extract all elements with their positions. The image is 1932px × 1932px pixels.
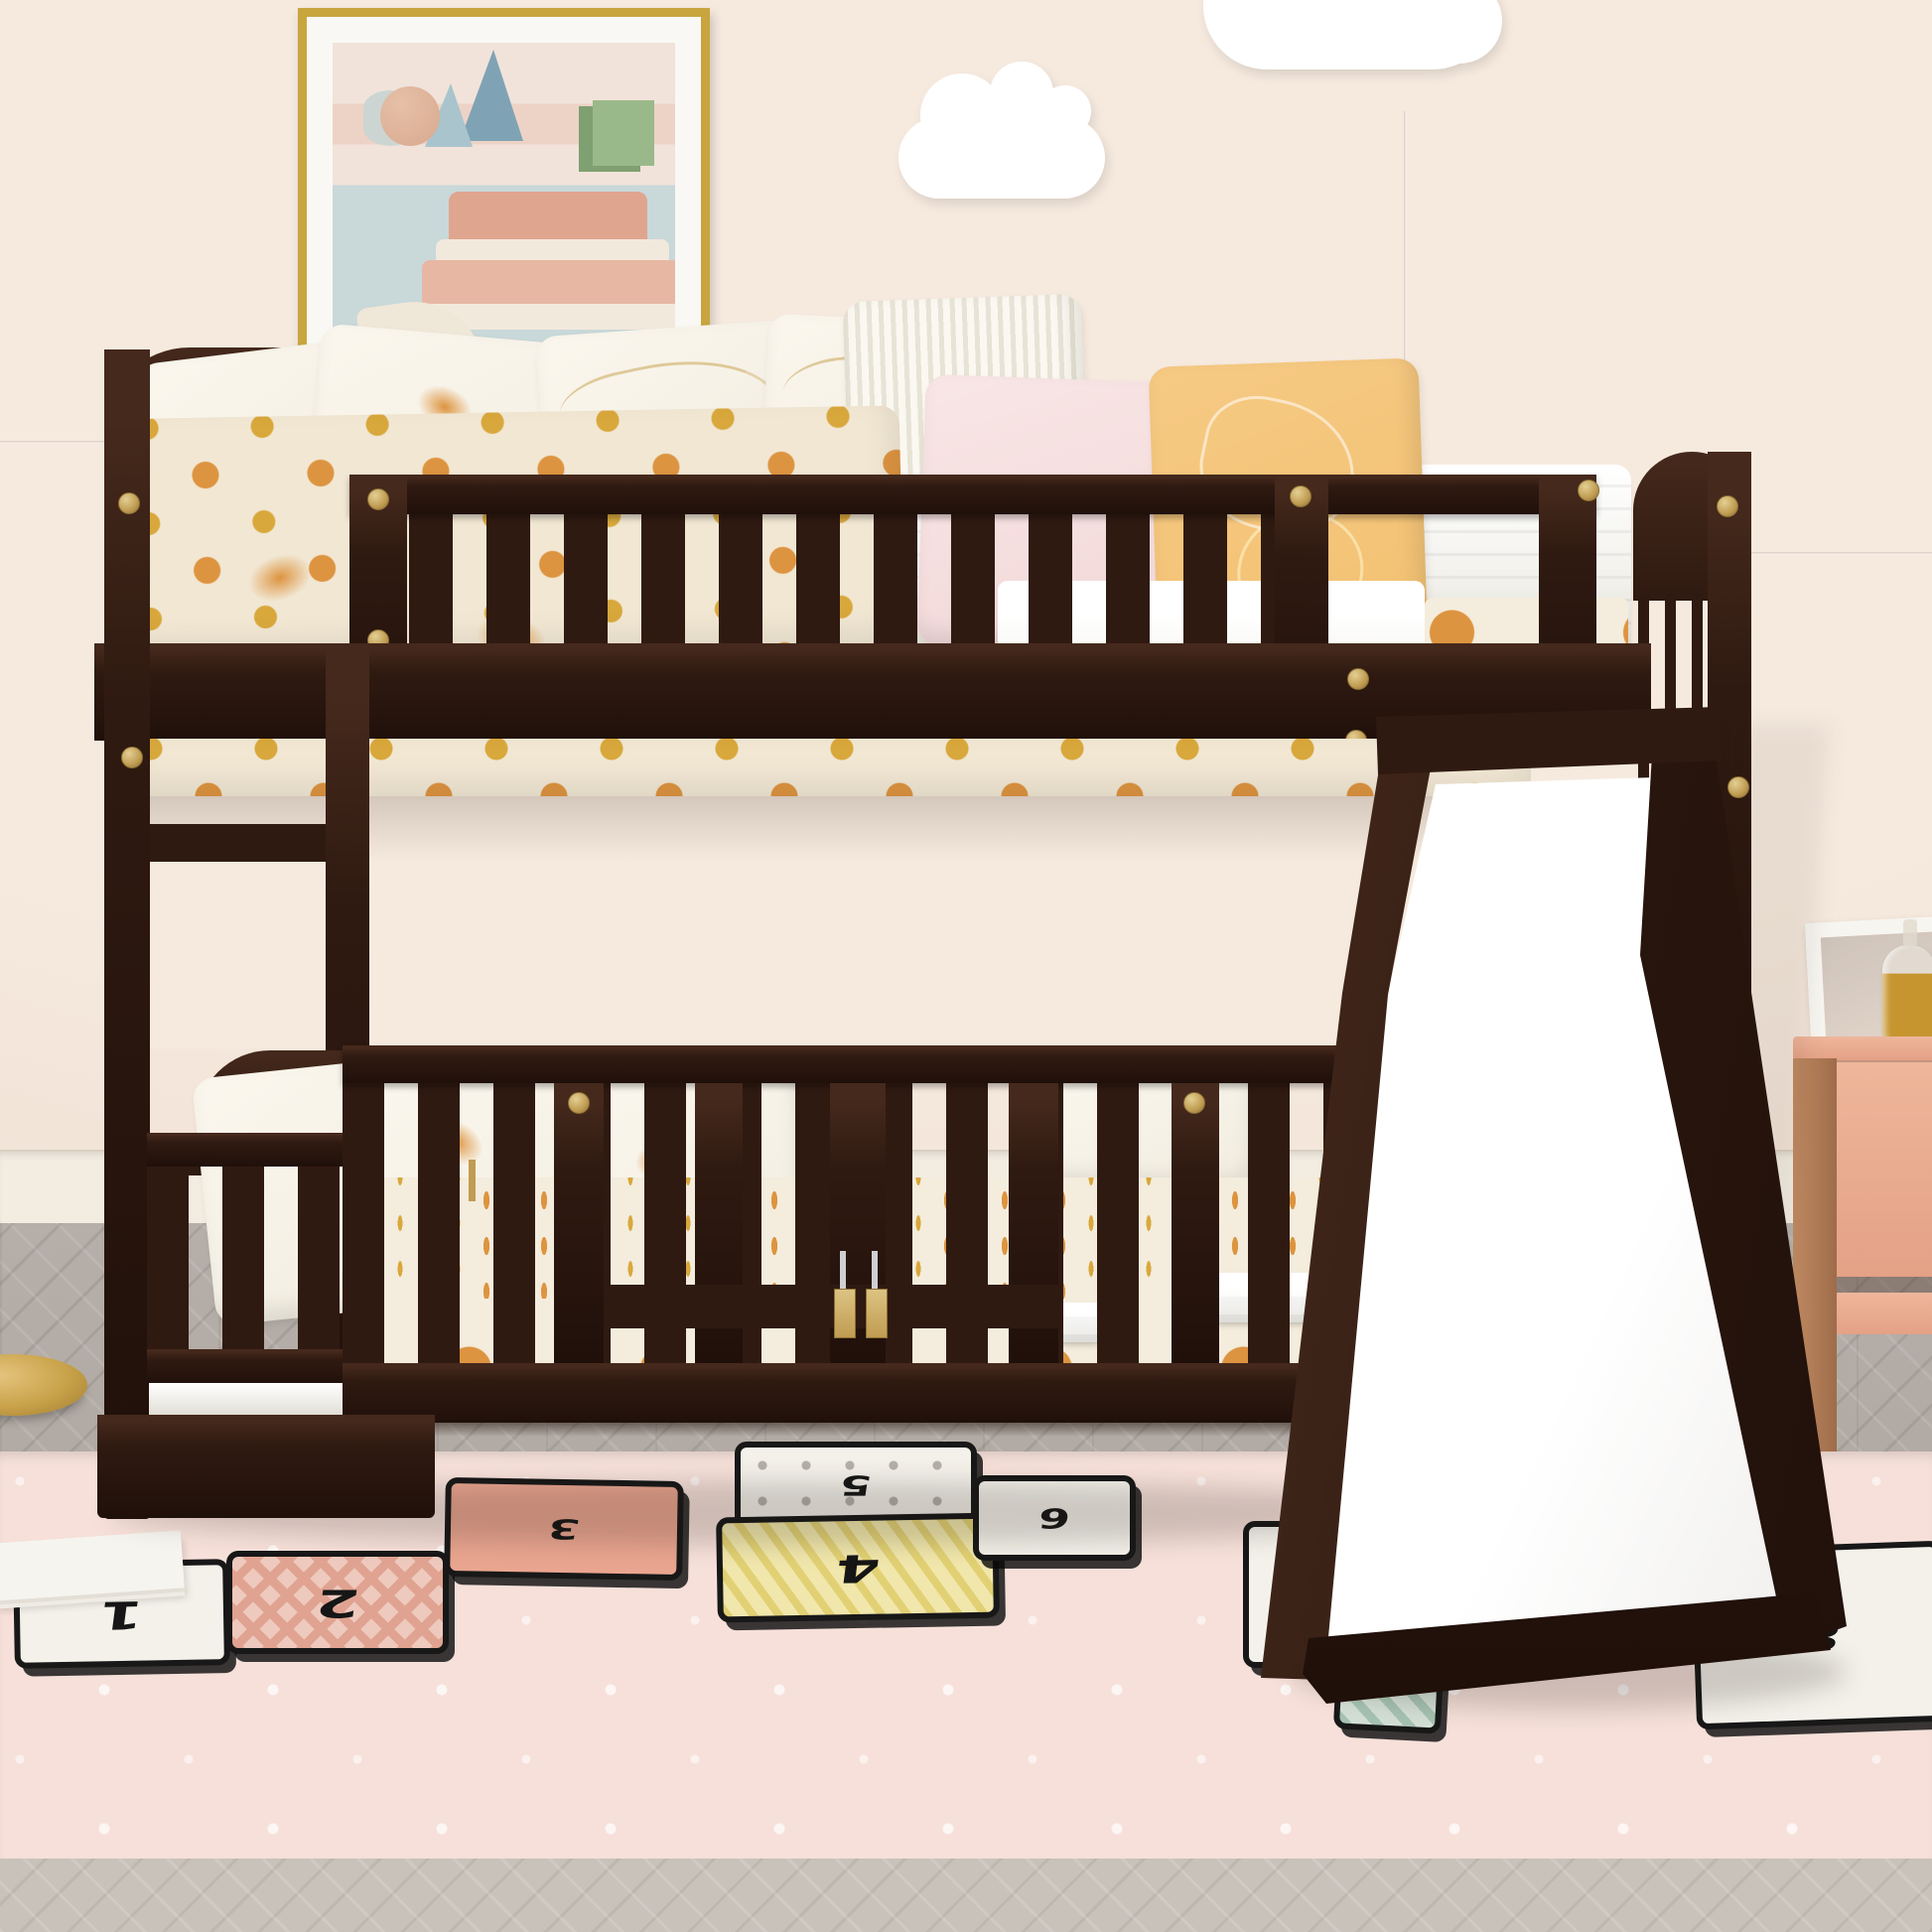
screw-icon xyxy=(121,747,143,768)
rug-number: 2 xyxy=(313,1584,362,1621)
gate-mid-rail xyxy=(604,1285,1060,1328)
end-fence-bottom-rail xyxy=(147,1349,347,1385)
screw-icon xyxy=(568,1092,590,1114)
gate-latch-icon xyxy=(469,1160,476,1201)
cloud-decal-icon xyxy=(898,117,1105,199)
slide xyxy=(1231,695,1932,1718)
art-cake-tier xyxy=(422,260,675,306)
screw-icon xyxy=(1290,485,1311,507)
gate-hinge-icon xyxy=(866,1289,888,1338)
rug-number: 1 xyxy=(97,1594,146,1633)
screw-icon xyxy=(1183,1092,1205,1114)
fence-stile xyxy=(1172,1083,1219,1367)
fence-stile xyxy=(554,1083,604,1367)
end-fence-top-rail xyxy=(147,1133,347,1167)
gate-hinge-icon xyxy=(834,1289,856,1338)
screw-icon xyxy=(1578,480,1599,501)
screw-icon xyxy=(1347,668,1369,690)
ladder-rung xyxy=(150,824,326,862)
bed-base xyxy=(97,1415,435,1518)
guardrail-top-rail xyxy=(349,475,1596,514)
end-fence-slats xyxy=(147,1167,347,1349)
guardrail-slats xyxy=(409,512,1275,645)
wood-floor-front xyxy=(0,1855,1932,1932)
art-cake-tier xyxy=(449,192,647,243)
art-cube-shape xyxy=(593,100,654,166)
wall-panel-seam xyxy=(1747,552,1932,555)
bedroom-scene: 1 2 3 5 4 6 7 8 xyxy=(0,0,1932,1932)
rug-number: 4 xyxy=(833,1548,882,1587)
cloud-decal-icon xyxy=(1203,0,1496,69)
screw-icon xyxy=(118,492,140,514)
bed-left-post xyxy=(104,349,150,1519)
hopscotch-patch: 2 xyxy=(226,1551,449,1654)
screw-icon xyxy=(1727,776,1749,798)
screw-icon xyxy=(367,488,389,510)
screw-icon xyxy=(1717,495,1738,517)
